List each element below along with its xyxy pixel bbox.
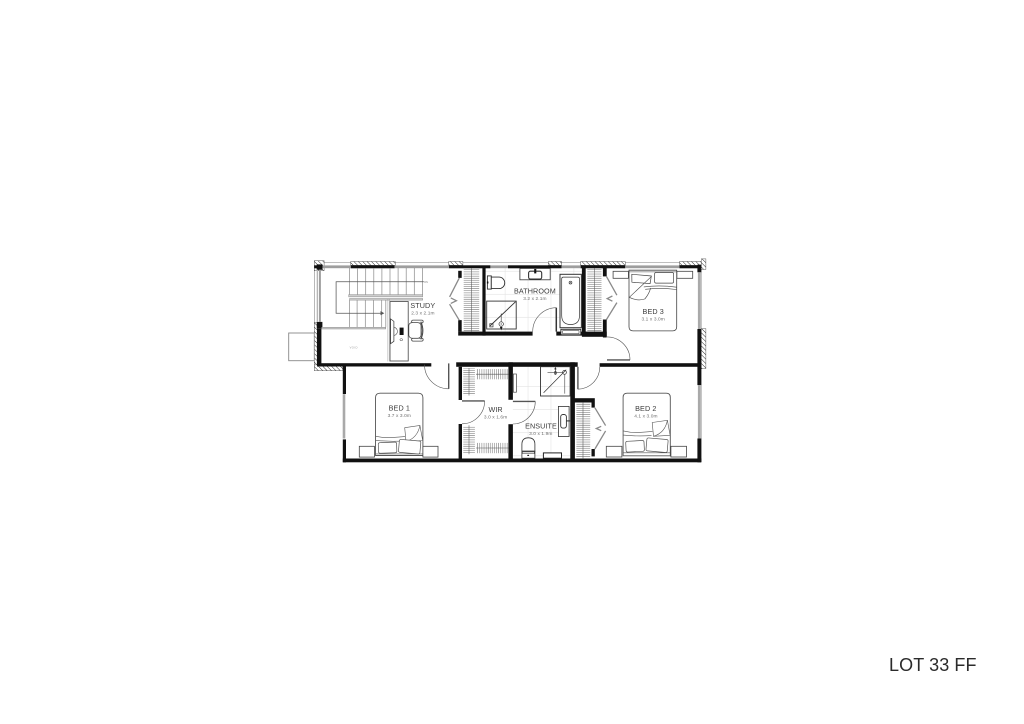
svg-text:LOT 33 FF: LOT 33 FF [889, 655, 977, 675]
svg-text:WIR: WIR [488, 405, 502, 414]
svg-text:DN: DN [424, 280, 428, 284]
svg-text:3.0 x 1.6m: 3.0 x 1.6m [484, 414, 507, 420]
svg-text:3.2 x 2.1m: 3.2 x 2.1m [523, 296, 546, 302]
svg-text:3.7 x 3.0m: 3.7 x 3.0m [388, 413, 411, 419]
svg-text:BED 3: BED 3 [643, 307, 664, 316]
svg-text:STUDY: STUDY [410, 301, 435, 310]
svg-text:3.0 x 1.9m: 3.0 x 1.9m [529, 431, 552, 437]
svg-text:BATHROOM: BATHROOM [514, 287, 556, 296]
svg-text:4.1 x 3.0m: 4.1 x 3.0m [634, 414, 657, 420]
svg-text:ENSUITE: ENSUITE [525, 421, 557, 430]
svg-text:2.3 x 2.1m: 2.3 x 2.1m [411, 310, 434, 316]
svg-text:VOID: VOID [350, 346, 358, 350]
svg-text:BED 2: BED 2 [635, 404, 656, 413]
svg-text:3.1 x 3.0m: 3.1 x 3.0m [641, 317, 664, 323]
svg-text:BED 1: BED 1 [389, 404, 410, 413]
